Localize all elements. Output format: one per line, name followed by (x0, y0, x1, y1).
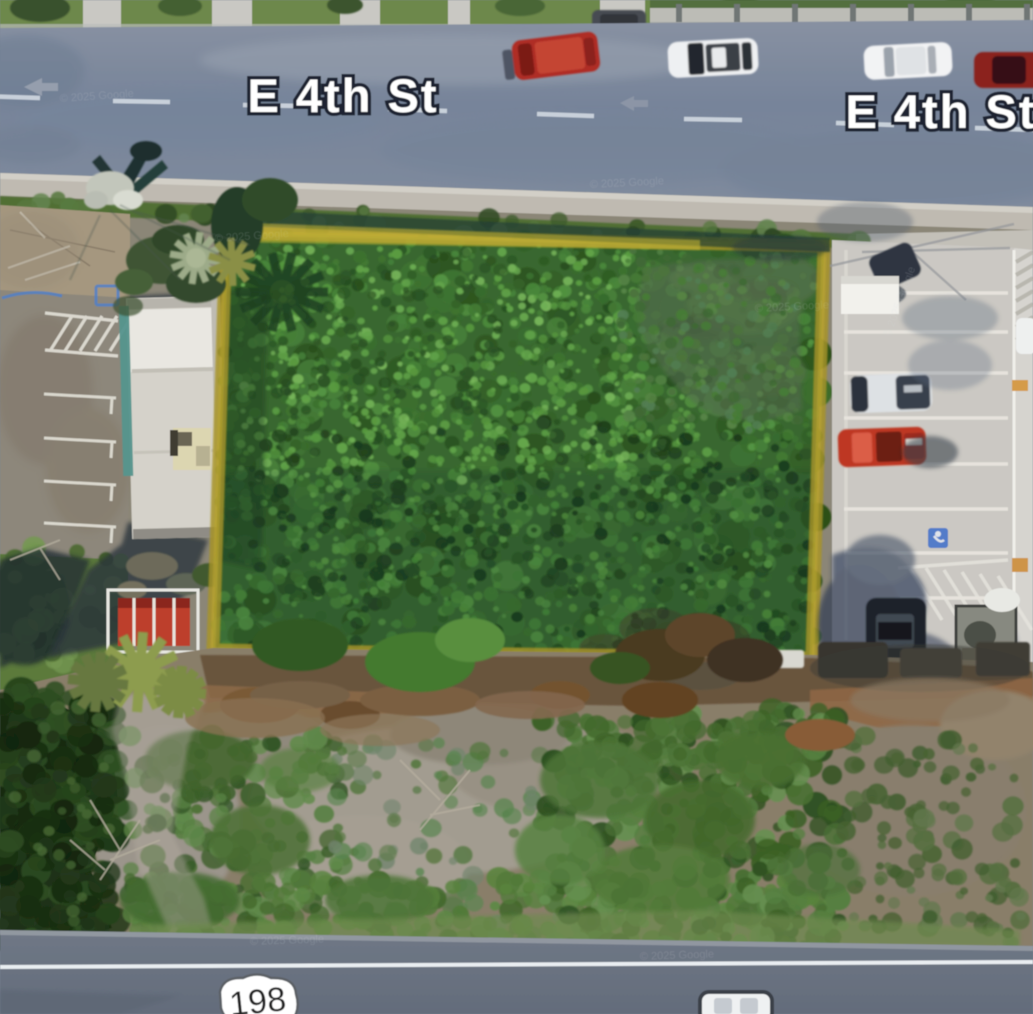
svg-text:E 4th St: E 4th St (248, 69, 439, 122)
svg-text:198: 198 (227, 980, 287, 1014)
svg-text:E 4th St: E 4th St (846, 85, 1033, 138)
